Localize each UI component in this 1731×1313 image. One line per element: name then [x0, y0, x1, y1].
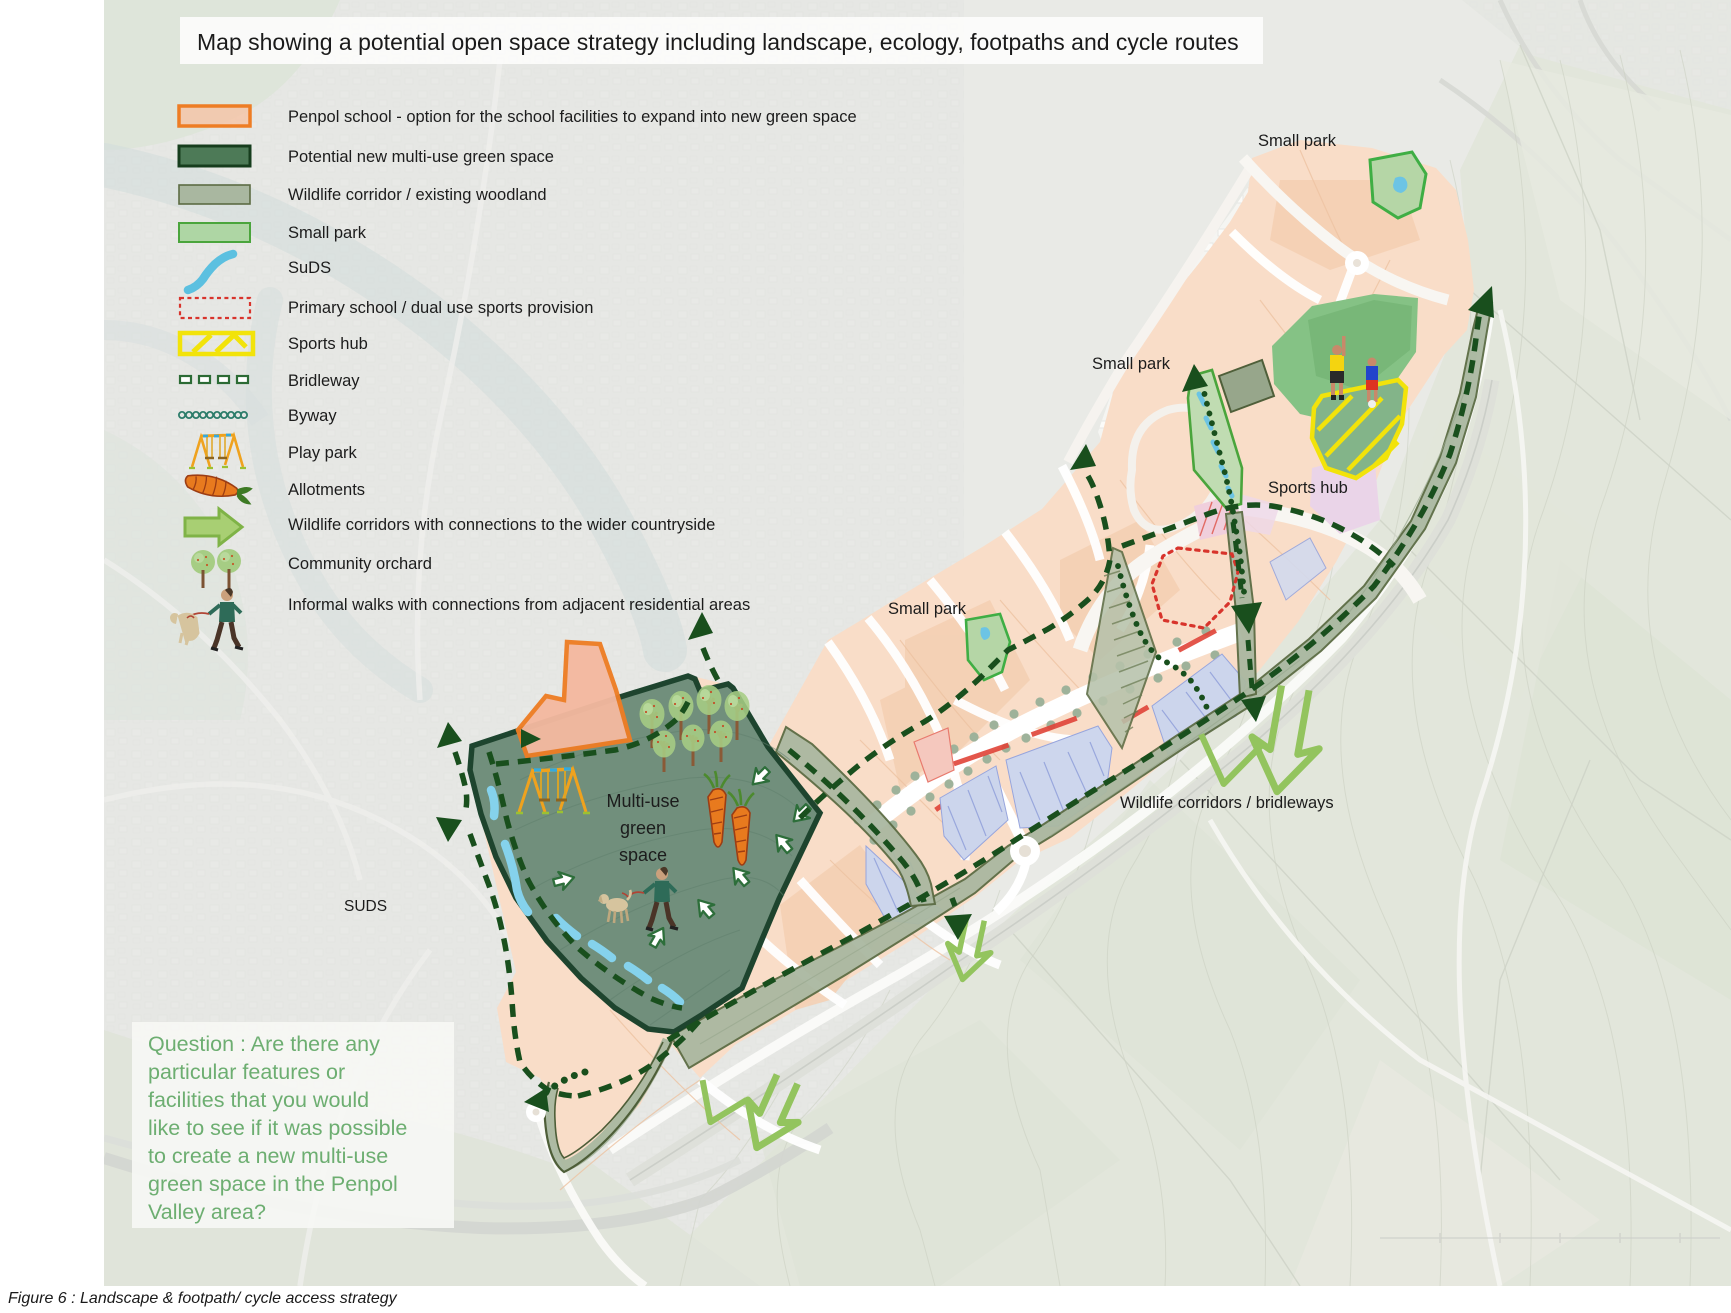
svg-text:Small park: Small park [288, 224, 367, 242]
svg-text:Figure 6 : Landscape & footpa: Figure 6 : Landscape & footpath/ cycle a… [8, 1290, 398, 1307]
svg-text:Small park: Small park [1258, 132, 1337, 150]
svg-text:Bridleway: Bridleway [288, 372, 360, 390]
svg-text:Allotments: Allotments [288, 481, 365, 499]
svg-text:Sports hub: Sports hub [288, 335, 368, 353]
svg-text:facilities that you would: facilities that you would [148, 1088, 369, 1112]
svg-text:like to see if it was possible: like to see if it was possible [148, 1116, 407, 1140]
svg-text:Potential new multi-use green: Potential new multi-use green space [288, 148, 554, 166]
svg-text:Primary school / dual use spor: Primary school / dual use sports provisi… [288, 299, 593, 317]
svg-text:Play park: Play park [288, 444, 358, 462]
svg-text:Valley area?: Valley area? [148, 1200, 266, 1224]
svg-text:SuDS: SuDS [288, 259, 331, 277]
svg-text:green: green [620, 818, 666, 838]
svg-text:Wildlife corridor / existing w: Wildlife corridor / existing woodland [288, 186, 547, 204]
svg-text:Small park: Small park [888, 600, 967, 618]
svg-text:Multi-use: Multi-use [606, 791, 679, 811]
svg-text:Wildlife corridors / bridlewa: Wildlife corridors / bridleways [1120, 794, 1334, 812]
svg-text:Penpol school - option for the: Penpol school - option for the school fa… [288, 108, 857, 126]
svg-text:Informal walks with connection: Informal walks with connections from adj… [288, 596, 750, 614]
svg-text:Small park: Small park [1092, 355, 1171, 373]
svg-text:space: space [619, 845, 667, 865]
svg-text:Map showing a potential open s: Map showing a potential open space strat… [197, 29, 1239, 55]
svg-text:Sports hub: Sports hub [1268, 479, 1348, 497]
svg-text:green space in the Penpol: green space in the Penpol [148, 1172, 398, 1196]
svg-text:particular features or: particular features or [148, 1060, 345, 1084]
svg-text:to create a new multi-use: to create a new multi-use [148, 1144, 388, 1168]
svg-text:Wildlife corridors with connec: Wildlife corridors with connections to t… [288, 516, 715, 534]
svg-text:Question : Are there any: Question : Are there any [148, 1032, 380, 1056]
svg-text:SUDS: SUDS [344, 898, 387, 915]
svg-text:Community orchard: Community orchard [288, 555, 432, 573]
svg-text:Byway: Byway [288, 407, 337, 425]
